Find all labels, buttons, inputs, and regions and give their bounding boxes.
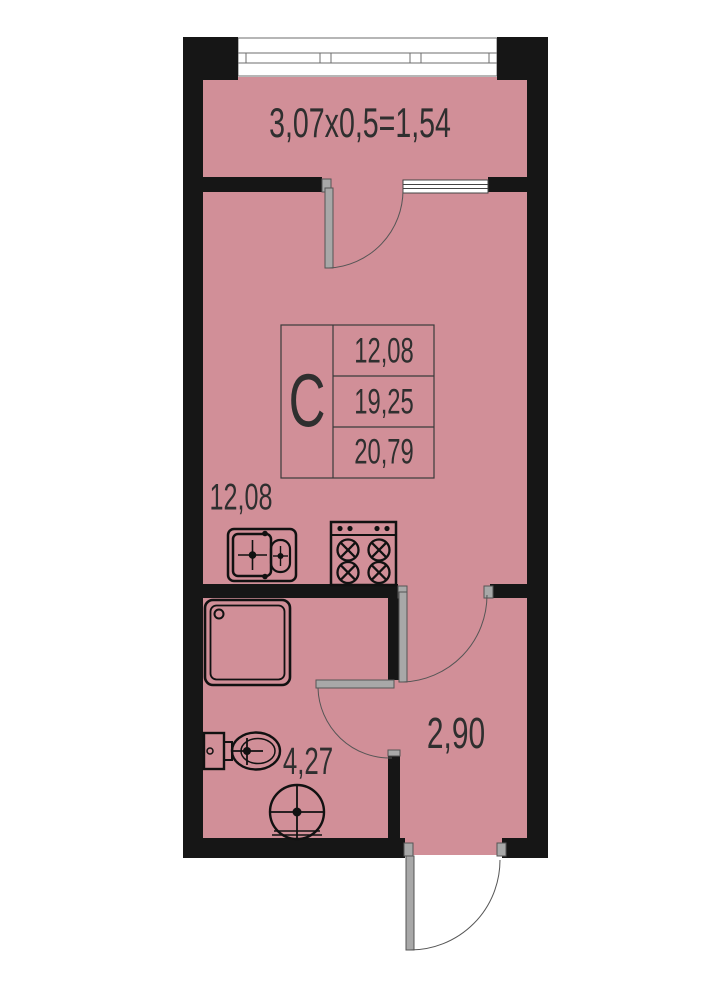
hallway-area-label: 2,90 — [427, 712, 485, 756]
balcony-glazing-icon — [238, 38, 497, 76]
kitchen-living-area-label: 12,08 — [210, 479, 273, 516]
entrance-door-icon — [404, 843, 506, 950]
balcony-dimension-label: 3,07x0,5=1,54 — [269, 102, 451, 144]
washbasin-icon — [270, 785, 325, 839]
unit-area-value-1: 12,08 — [354, 334, 414, 369]
unit-area-value-2: 19,25 — [354, 385, 414, 420]
unit-type-label: C — [289, 364, 326, 439]
floor-plan-page: 3,07x0,5=1,54 C 12,08 19,25 20,79 12,08 … — [0, 0, 707, 1000]
floor-plan-drawing — [0, 0, 707, 1000]
balcony-window-icon — [403, 180, 488, 193]
bathroom-area-label: 4,27 — [283, 743, 333, 781]
unit-area-value-3: 20,79 — [354, 435, 414, 470]
